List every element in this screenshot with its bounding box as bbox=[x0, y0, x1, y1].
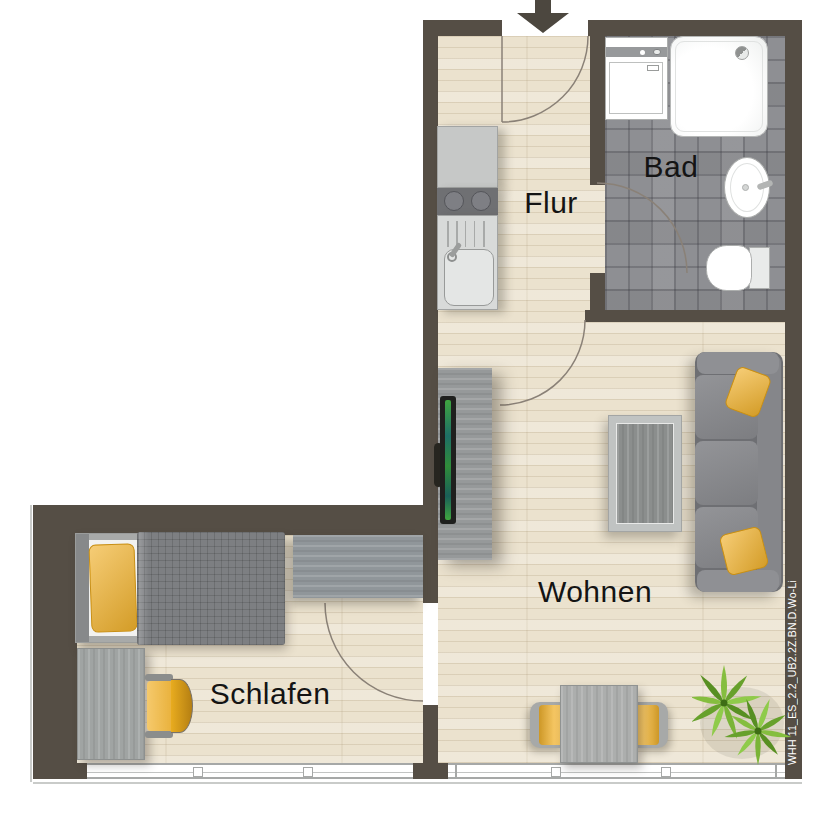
washing-machine bbox=[605, 37, 668, 120]
kitchen-counter bbox=[437, 126, 498, 188]
dish-drainer-lines bbox=[447, 221, 489, 247]
desk-chair bbox=[145, 674, 195, 738]
kitchen-stove bbox=[437, 188, 498, 215]
coffee-table-top bbox=[616, 423, 674, 524]
coffee-table bbox=[608, 415, 682, 532]
stove-burner bbox=[444, 191, 464, 211]
desk bbox=[77, 648, 145, 760]
washer-display bbox=[647, 65, 659, 71]
shower-inner-line bbox=[675, 41, 763, 132]
tv-screen bbox=[440, 396, 456, 524]
door-arc-entrance bbox=[502, 36, 588, 122]
bed-blanket bbox=[137, 532, 285, 645]
door-arc-schlafen bbox=[325, 603, 423, 701]
room-label-flur: Flur bbox=[524, 186, 578, 220]
door-arc-bad bbox=[597, 183, 687, 273]
dining-chair-right bbox=[634, 702, 668, 748]
washbasin bbox=[724, 157, 770, 218]
kitchen-sink-unit bbox=[437, 215, 498, 310]
door-arc-flur-wohnen bbox=[500, 320, 585, 405]
toilet-bowl bbox=[706, 245, 752, 291]
entrance-arrow-icon bbox=[515, 0, 571, 33]
wardrobe-sideboard bbox=[293, 535, 423, 598]
desk-chair-back bbox=[171, 679, 193, 733]
desk-chair-armrest bbox=[145, 731, 173, 738]
shower-drain bbox=[735, 46, 749, 60]
stove-burner bbox=[471, 191, 491, 211]
plant-icon bbox=[692, 663, 792, 768]
bed-headboard bbox=[76, 534, 89, 642]
toilet-tank bbox=[749, 247, 770, 289]
bed bbox=[75, 533, 283, 643]
shower bbox=[670, 36, 768, 137]
dining-table bbox=[560, 685, 638, 763]
plan-code-label: WHH 11_ES_2.2_UB2.2Z.BN.D.Wo-Li bbox=[786, 585, 801, 765]
desk-chair-armrest bbox=[145, 674, 173, 681]
room-label-schlafen: Schlafen bbox=[210, 677, 331, 711]
floor-plan-canvas: Flur Bad Wohnen Schlafen WHH 11_ES_2.2_U… bbox=[0, 0, 836, 815]
room-label-bad: Bad bbox=[644, 150, 699, 184]
washbasin-drain bbox=[742, 184, 749, 191]
sofa-cushion bbox=[695, 441, 758, 505]
sofa bbox=[695, 352, 783, 592]
bed-pillow bbox=[88, 543, 137, 633]
blanket-fold bbox=[139, 532, 149, 645]
washer-knob bbox=[640, 50, 645, 55]
dining-chair-left bbox=[530, 702, 564, 748]
washing-machine-lid bbox=[609, 62, 663, 114]
washing-machine-control-band bbox=[606, 47, 667, 57]
room-label-wohnen: Wohnen bbox=[538, 575, 652, 609]
washer-knob bbox=[653, 49, 661, 55]
tv-screen-glow bbox=[445, 400, 451, 520]
